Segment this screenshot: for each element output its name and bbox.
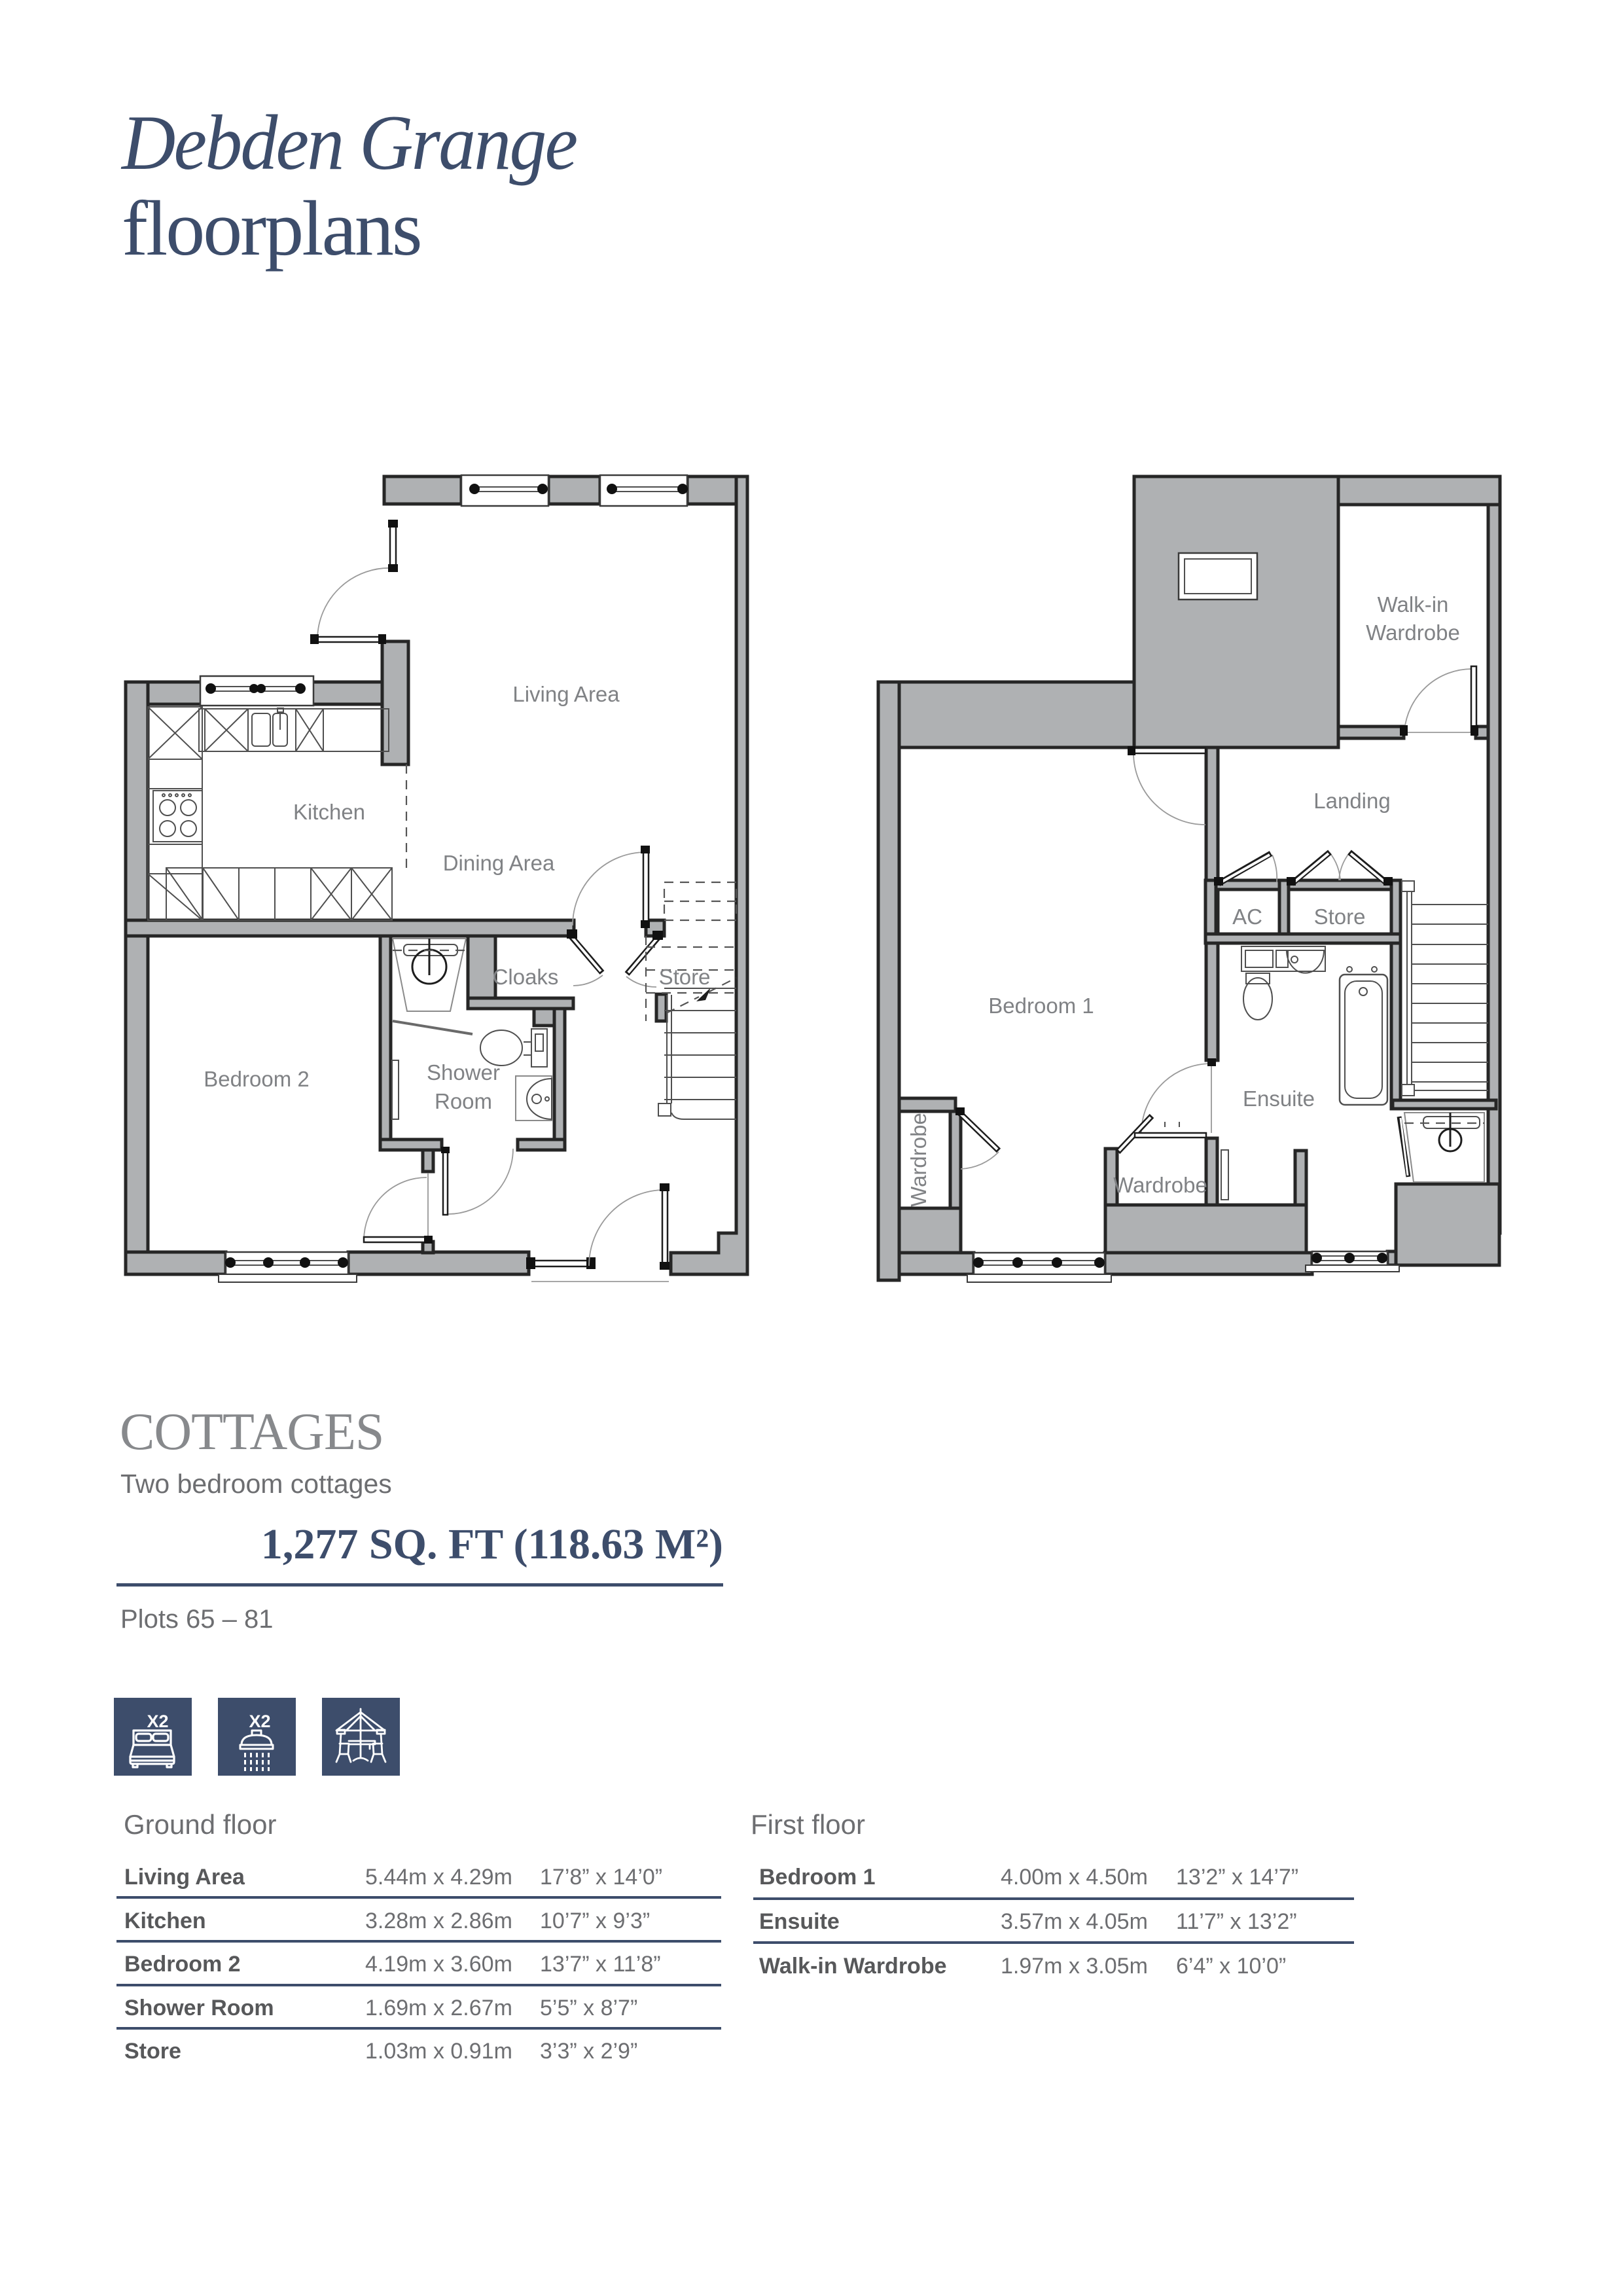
svg-text:AC: AC <box>1232 905 1262 929</box>
svg-text:Kitchen: Kitchen <box>293 800 365 824</box>
svg-text:Cloaks: Cloaks <box>493 965 559 989</box>
svg-text:Bedroom 2: Bedroom 2 <box>204 1067 309 1091</box>
svg-text:Room: Room <box>435 1089 492 1113</box>
svg-text:Wardrobe: Wardrobe <box>1113 1173 1207 1197</box>
svg-text:Bedroom 1: Bedroom 1 <box>988 994 1094 1018</box>
svg-text:X2: X2 <box>147 1712 168 1731</box>
svg-text:Store: Store <box>659 965 711 989</box>
svg-text:Store: Store <box>1314 905 1366 929</box>
svg-text:Wardrobe: Wardrobe <box>1366 620 1460 645</box>
svg-text:Ensuite: Ensuite <box>1243 1086 1315 1111</box>
svg-text:X2: X2 <box>249 1712 270 1731</box>
svg-text:Walk-in: Walk-in <box>1378 592 1449 617</box>
svg-text:Shower: Shower <box>427 1060 500 1085</box>
svg-text:Wardrobe: Wardrobe <box>906 1113 931 1207</box>
svg-text:Dining Area: Dining Area <box>443 851 555 875</box>
svg-text:Living Area: Living Area <box>512 682 620 706</box>
svg-text:Landing: Landing <box>1313 789 1390 813</box>
